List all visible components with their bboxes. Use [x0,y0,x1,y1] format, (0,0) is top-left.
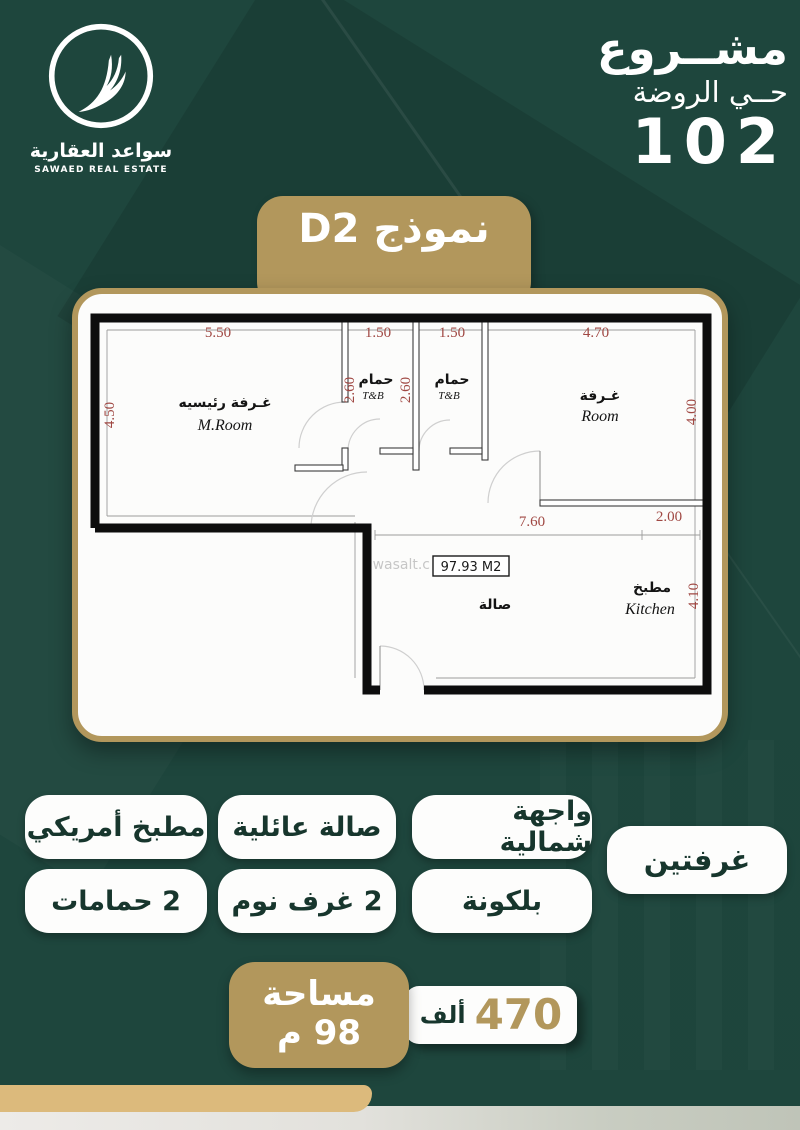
feature-badge-two-bedrooms: 2 غرف نوم [218,869,396,933]
dim-bath1-width: 1.50 [365,325,391,341]
brand-logo-block: سواعد العقارية SAWAED REAL ESTATE [26,20,176,175]
feature-badge-two-bathrooms: 2 حمامات [25,869,207,933]
area-label: مساحة [262,976,376,1013]
model-banner-label: نموذج D2 [298,206,489,252]
flyer-poster: سواعد العقارية SAWAED REAL ESTATE مشــرو… [0,0,800,1130]
dim-kitchen-height: 4.10 [686,583,702,609]
area-badge: مساحة 98 م [229,962,409,1068]
feature-label: صالة عائلية [232,812,381,843]
dim-master-height: 4.50 [102,402,118,428]
feature-label: 2 غرف نوم [231,886,382,917]
dim-master-width: 5.50 [205,325,231,341]
project-district: حــي الروضة [558,75,788,109]
feature-label: واجهة شمالية [412,796,592,858]
brand-name-arabic: سواعد العقارية [26,140,176,162]
interior-walls [295,318,707,506]
area-value: 98 م [277,1013,361,1054]
feature-badge-two-rooms: غرفتين [607,826,787,894]
price-number: 470 [475,994,563,1036]
dim-bath2-height: 2.60 [398,377,414,403]
watermark: wasalt.c [373,557,430,573]
project-word: مشــروع [558,26,788,71]
label-bath2-ar: حمام [435,372,470,388]
feature-label: غرفتين [644,843,751,877]
dim-bath1-height: 2.60 [342,377,358,403]
project-number: 102 [558,111,788,173]
feature-badge-family-hall: صالة عائلية [218,795,396,859]
label-kitchen-ar: مطبخ [633,580,671,596]
label-bath2-en: T&B [438,390,460,402]
label-hall-ar: صالة [479,597,512,613]
feature-label: 2 حمامات [51,886,181,917]
feature-label: مطبخ أمريكي [27,812,206,843]
dim-bath2-width: 1.50 [439,325,465,341]
label-master-en: M.Room [197,417,253,434]
label-room-en: Room [580,408,618,425]
price-pill: 470 ألف [405,986,577,1044]
room-labels: غـرفة رئيسيه M.Room حمام T&B حمام T&B غـ… [178,372,674,618]
feature-badge-american-kitchen: مطبخ أمريكي [25,795,207,859]
feature-badge-balcony: بلكونة [412,869,592,933]
feature-label: بلكونة [462,886,542,917]
area-box-value: 97.93 M2 [441,560,502,575]
brand-logo-icon [45,20,157,132]
label-bath1-ar: حمام [359,372,394,388]
bottom-tan-strip [0,1085,372,1112]
price-unit: ألف [420,1003,466,1027]
label-kitchen-en: Kitchen [624,601,675,618]
dim-hall-width: 7.60 [519,514,545,530]
feature-badge-north-facade: واجهة شمالية [412,795,592,859]
dim-kitchen-width: 2.00 [656,509,682,525]
label-room-ar: غـرفة [580,388,621,404]
label-master-ar: غـرفة رئيسيه [178,395,271,411]
floor-plan-drawing: 5.50 1.50 1.50 4.70 4.50 2.60 2.60 4.00 … [78,294,722,736]
project-title-block: مشــروع حــي الروضة 102 [558,26,788,173]
brand-name-english: SAWAED REAL ESTATE [26,165,176,175]
dim-room-width: 4.70 [583,325,609,341]
floor-plan-card: 5.50 1.50 1.50 4.70 4.50 2.60 2.60 4.00 … [72,288,728,742]
dim-room-height: 4.00 [684,399,700,425]
label-bath1-en: T&B [362,390,384,402]
